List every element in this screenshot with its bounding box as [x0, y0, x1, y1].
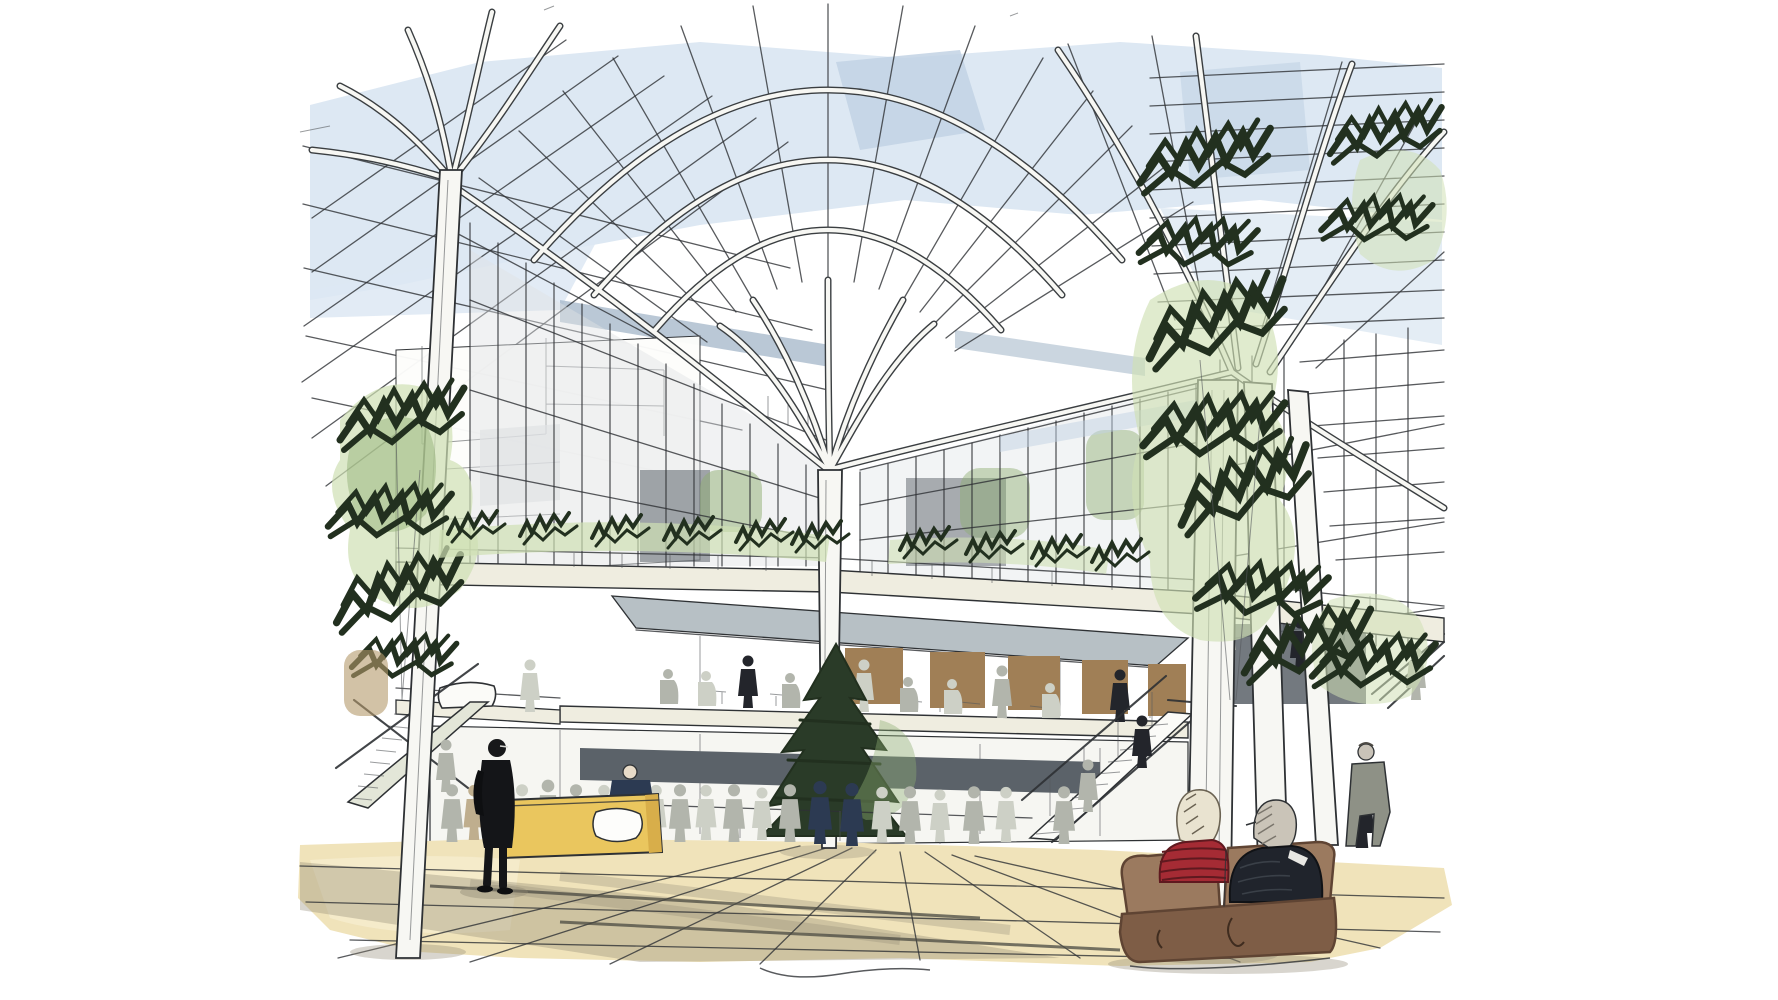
standing-man-body: [1346, 762, 1390, 846]
attendant-head: [623, 765, 637, 779]
person-figure: [660, 669, 678, 704]
left-person-hair: [1177, 790, 1220, 848]
man-shoe-right: [497, 888, 513, 895]
person-figure: [520, 660, 540, 713]
man-body: [479, 760, 515, 848]
person-figure: [738, 656, 758, 709]
standing-man-head: [1358, 744, 1374, 760]
person-figure: [698, 671, 716, 706]
man-shadow: [460, 885, 528, 899]
eaves-glass-strip-right: [955, 330, 1145, 376]
man-head: [488, 739, 506, 757]
desk-white-parcel: [593, 808, 642, 841]
timber-panel-5: [1148, 664, 1186, 716]
tree-left-tan-blob: [344, 650, 388, 716]
person-figure: [782, 673, 800, 708]
man-shoe-left: [477, 886, 493, 893]
man-glasses: [500, 746, 508, 747]
atrium-sketch-canvas: Architectural concept sketch of a glass-…: [0, 0, 1778, 1000]
atrium-sketch: Architectural concept sketch of a glass-…: [0, 0, 1778, 1000]
